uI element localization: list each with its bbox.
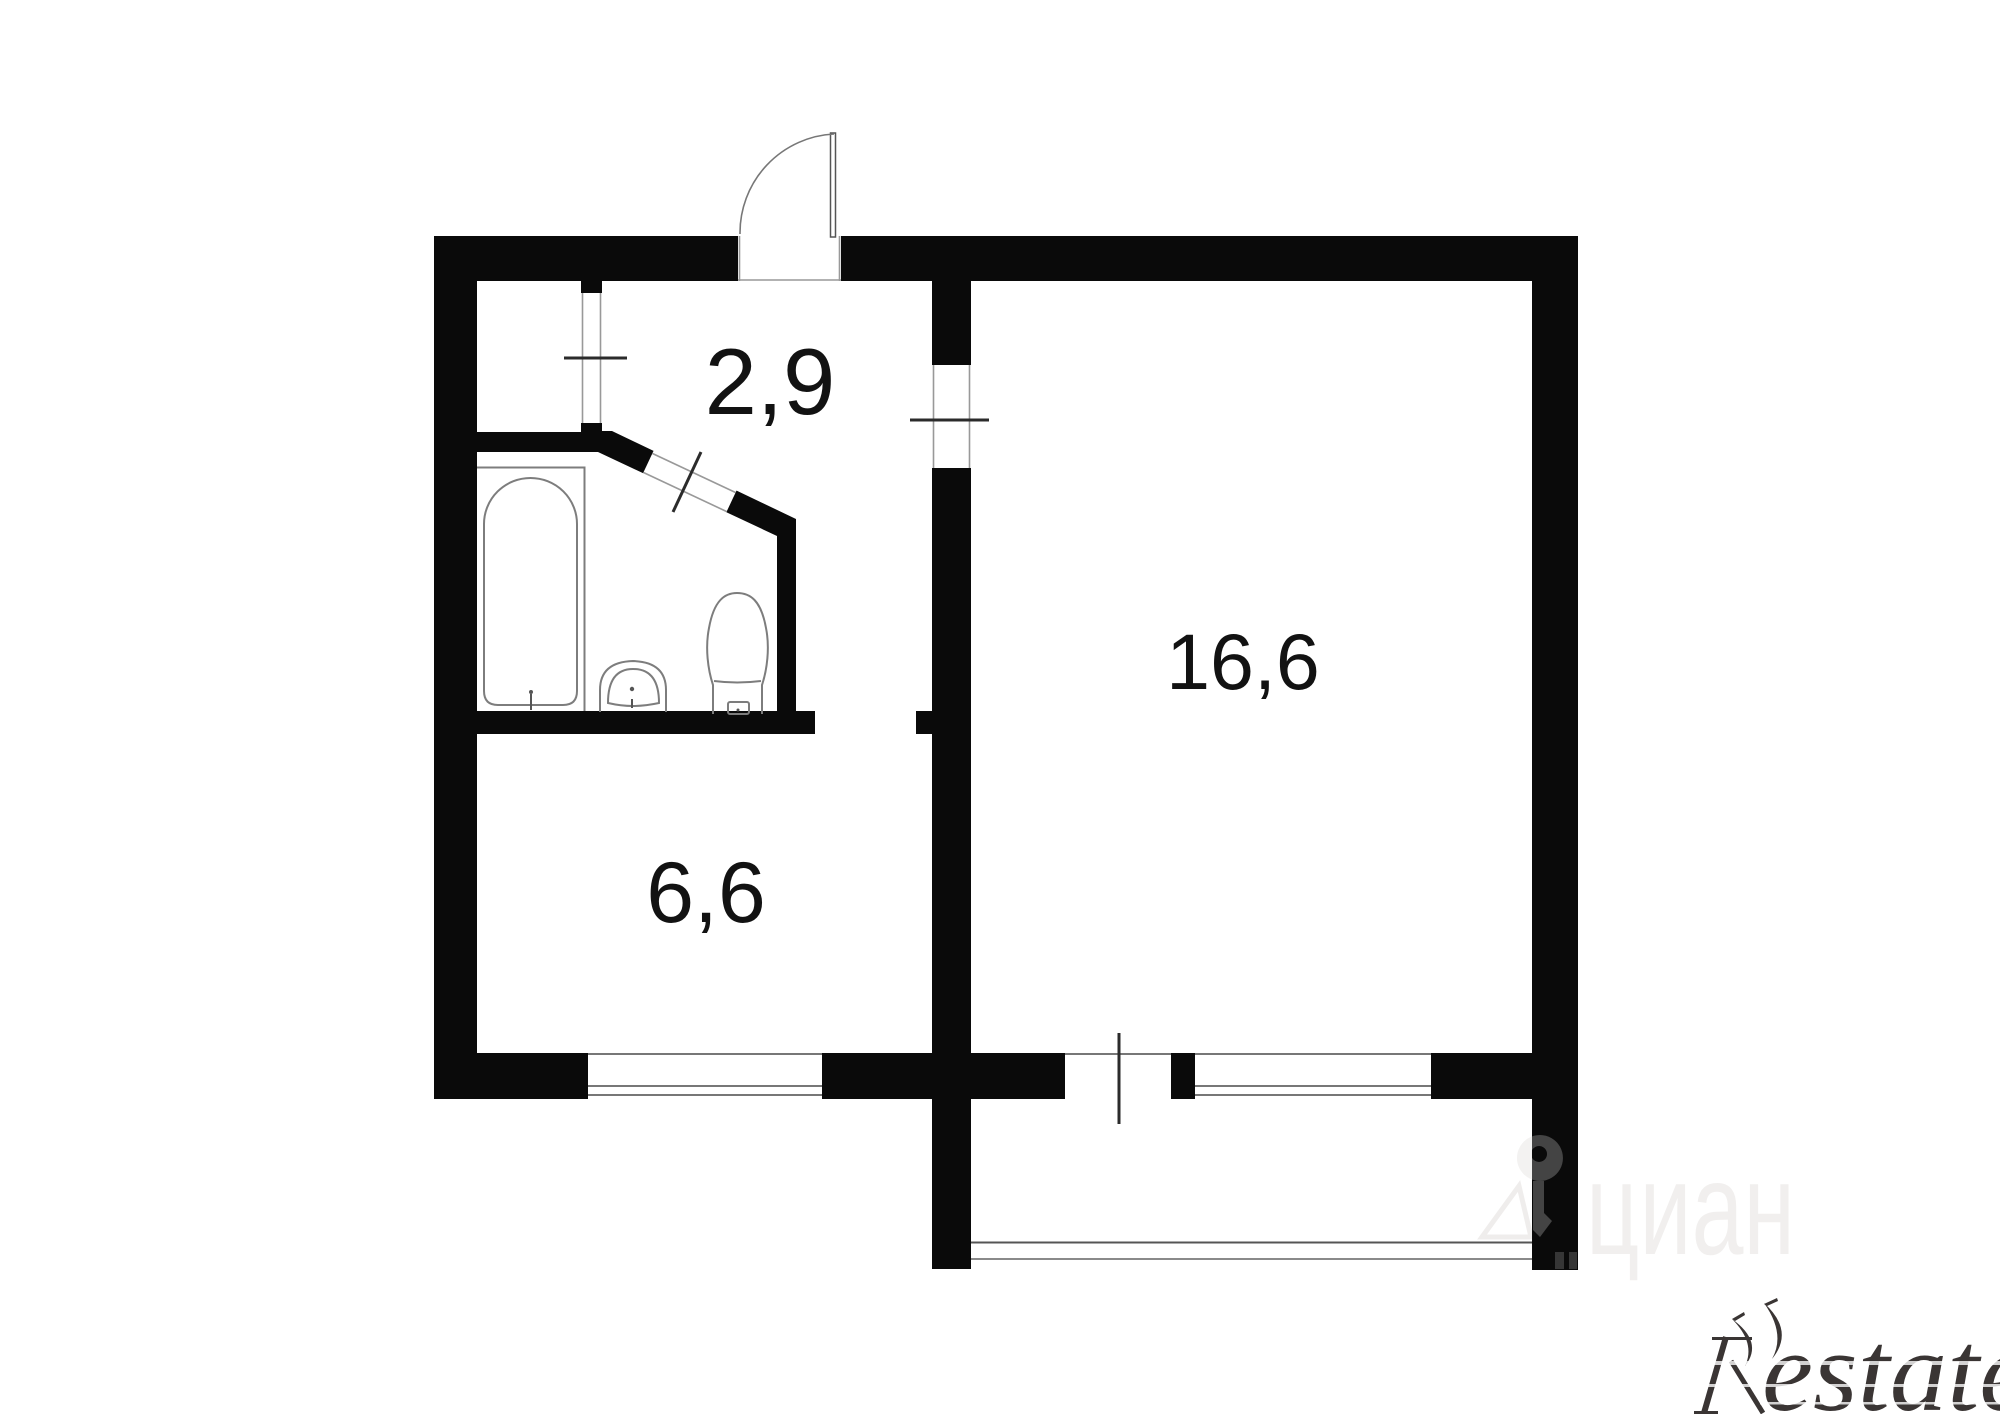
svg-text:циан: циан xyxy=(1586,1135,1795,1282)
svg-text:16,6: 16,6 xyxy=(1166,617,1320,706)
svg-text:2,9: 2,9 xyxy=(705,329,836,434)
svg-text:6,6: 6,6 xyxy=(646,845,766,941)
